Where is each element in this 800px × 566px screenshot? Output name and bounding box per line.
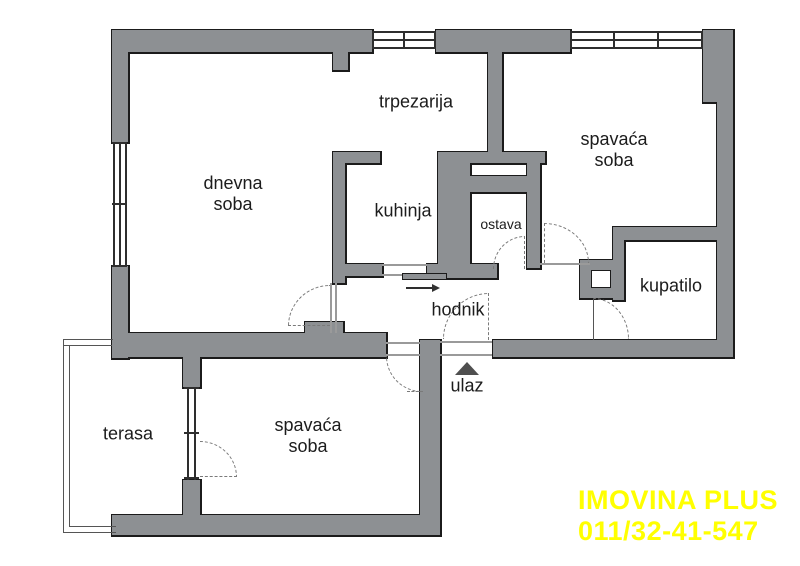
- wall: [183, 345, 200, 387]
- wall: [493, 340, 719, 357]
- entrance-door-leaf: [488, 293, 489, 340]
- room-label-ostava: ostava: [480, 216, 521, 232]
- window-line: [570, 47, 703, 49]
- watermark-agency-name: IMOVINA PLUS: [578, 485, 778, 516]
- room-label-spavaca-soba-dole: spavaća soba: [274, 415, 341, 457]
- terrace-railing: [63, 345, 112, 346]
- bathroom-door-leaf: [593, 298, 594, 340]
- door-jamb: [335, 283, 337, 333]
- sliding-door-arrow: [406, 287, 432, 289]
- window-tick: [701, 31, 703, 49]
- room-label-hodnik: hodnik: [431, 300, 484, 321]
- window-top-2: [570, 31, 703, 33]
- window-tick: [184, 432, 199, 434]
- sliding-door-arrow-head: [432, 284, 440, 292]
- living-room-door-leaf: [288, 325, 330, 326]
- window-tick: [184, 387, 199, 389]
- pantry-door-leaf: [524, 236, 525, 269]
- wall: [420, 340, 440, 535]
- room-label-text: trpezarija: [379, 92, 453, 113]
- window-tick: [657, 31, 659, 49]
- room-label-text: ostava: [480, 216, 521, 232]
- window-tick: [112, 203, 127, 205]
- room-label-spavaca-soba-gore: spavaća soba: [580, 129, 647, 171]
- wall: [333, 50, 348, 70]
- wall: [488, 50, 502, 155]
- watermark-phone-number: 011/32-41-547: [578, 516, 778, 547]
- entrance-label-text: ulaz: [450, 376, 483, 397]
- room-label-terasa: terasa: [103, 424, 153, 445]
- window-tick: [112, 265, 127, 267]
- room-label-text: soba: [580, 150, 647, 171]
- bedroom-bottom-door-arc: [386, 356, 422, 392]
- window-line: [194, 387, 196, 480]
- room-label-text: spavaća: [274, 415, 341, 436]
- watermark: IMOVINA PLUS 011/32-41-547: [578, 485, 778, 547]
- wall: [112, 30, 128, 142]
- wall: [333, 152, 380, 163]
- wall: [183, 480, 200, 517]
- threshold: [540, 263, 590, 265]
- window-tick: [403, 31, 405, 49]
- window-tick: [372, 31, 374, 49]
- terrace-door-arc: [200, 441, 237, 477]
- threshold: [382, 264, 427, 266]
- bathroom-door-arc: [593, 298, 629, 339]
- wall: [717, 30, 733, 357]
- balcony-door: [187, 387, 189, 480]
- wall: [613, 227, 719, 240]
- room-label-text: kuhinja: [374, 201, 431, 222]
- wall: [436, 30, 570, 52]
- terrace-door-leaf: [200, 476, 237, 477]
- terrace-railing: [63, 339, 113, 340]
- window-tick: [570, 31, 572, 49]
- bedroom-top-door-leaf: [544, 223, 545, 263]
- room-label-text: kupatilo: [640, 276, 702, 297]
- wall: [333, 264, 382, 276]
- wall: [527, 152, 540, 268]
- sliding-door: [402, 273, 447, 280]
- window-tick: [434, 31, 436, 49]
- threshold: [440, 341, 492, 343]
- wall: [112, 515, 440, 535]
- terrace-railing: [63, 532, 116, 533]
- window-line: [570, 39, 703, 41]
- wall: [112, 333, 386, 357]
- terrace-railing: [63, 339, 64, 533]
- room-label-dnevna-soba: dnevna soba: [203, 173, 262, 215]
- room-label-text: terasa: [103, 424, 153, 445]
- pantry-door-arc: [493, 236, 525, 269]
- room-label-text: spavaća: [580, 129, 647, 150]
- threshold: [386, 342, 420, 344]
- door-jamb: [330, 283, 332, 333]
- room-label-trpezarija: trpezarija: [379, 92, 453, 113]
- wall: [112, 30, 372, 52]
- bedroom-top-door-arc: [544, 223, 589, 263]
- terrace-railing: [69, 345, 70, 527]
- terrace-railing: [69, 526, 116, 527]
- wall: [438, 152, 470, 278]
- wall: [466, 176, 529, 192]
- window-tick: [613, 31, 615, 49]
- bedroom-bottom-door-leaf: [407, 391, 423, 392]
- room-label-kuhinja: kuhinja: [374, 201, 431, 222]
- entrance-marker-icon: [455, 362, 479, 375]
- vent-shaft: [591, 270, 611, 288]
- living-room-door-arc: [288, 285, 330, 326]
- window-tick: [112, 142, 127, 144]
- window-tick: [184, 477, 199, 479]
- room-label-text: dnevna: [203, 173, 262, 194]
- room-label-text: hodnik: [431, 300, 484, 321]
- room-label-text: soba: [274, 436, 341, 457]
- room-label-text: soba: [203, 194, 262, 215]
- threshold: [440, 354, 492, 356]
- floorplan-canvas: trpezarija dnevna soba kuhinja ostava sp…: [0, 0, 800, 566]
- room-label-kupatilo: kupatilo: [640, 276, 702, 297]
- entrance-label: ulaz: [450, 376, 483, 397]
